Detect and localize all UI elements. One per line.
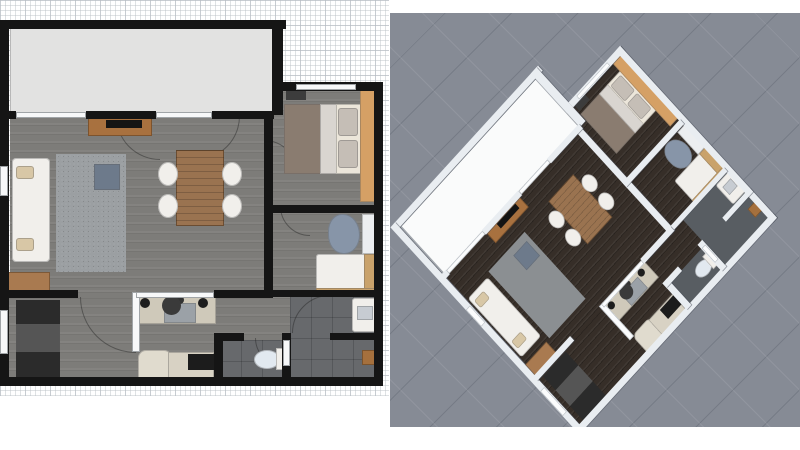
wc-door-leaf bbox=[283, 340, 290, 366]
balcony-right-wall bbox=[272, 20, 283, 115]
bedroom-window bbox=[296, 84, 356, 90]
balcony-floor bbox=[10, 28, 273, 114]
outer-wall-top bbox=[6, 20, 286, 29]
cooktop bbox=[188, 354, 214, 370]
tv bbox=[106, 120, 142, 128]
dining-table bbox=[176, 150, 224, 226]
fridge bbox=[138, 350, 172, 380]
dining-chair-2 bbox=[158, 194, 178, 218]
outer-wall-bottom bbox=[6, 377, 383, 386]
door-gap-kitchen bbox=[78, 290, 136, 298]
kid-bed-mattress bbox=[316, 254, 366, 292]
dining-chair-4 bbox=[222, 194, 242, 218]
hall-top-wall bbox=[214, 290, 272, 298]
bookshelf-top bbox=[16, 300, 60, 324]
stove-pot bbox=[162, 296, 181, 315]
living-sideboard bbox=[8, 272, 50, 292]
washer-drum bbox=[357, 306, 373, 320]
bedrooms-divider-wall bbox=[264, 205, 376, 213]
kid-bath-divider-wall bbox=[272, 290, 376, 297]
master-bed-duvet bbox=[284, 104, 322, 174]
bookshelf-bottom bbox=[16, 352, 60, 378]
dining-chair-1 bbox=[158, 162, 178, 186]
beanbag bbox=[328, 214, 360, 254]
dining-chair-3 bbox=[222, 162, 242, 186]
kitchen-partition bbox=[132, 292, 140, 352]
rug-cushion bbox=[94, 164, 120, 190]
sofa-pillow-top bbox=[16, 166, 34, 179]
floor-plan-app bbox=[0, 0, 800, 450]
balcony-sill-center bbox=[86, 111, 156, 119]
balcony-window-left bbox=[16, 112, 86, 118]
burner-right bbox=[198, 298, 208, 308]
master-pillow-2 bbox=[338, 140, 358, 168]
balcony-window-right bbox=[156, 112, 212, 118]
floor-plan-3d-view[interactable] bbox=[390, 13, 800, 427]
plan-2d-canvas bbox=[0, 0, 390, 450]
bookshelf-middle bbox=[16, 324, 60, 352]
outer-wall-right bbox=[374, 82, 383, 386]
balcony-sill-left bbox=[8, 111, 16, 119]
floor-plan-2d-view[interactable] bbox=[0, 0, 390, 450]
kitchen-window-left-wall bbox=[0, 310, 8, 354]
balcony-sill-right bbox=[212, 111, 274, 119]
kitchen-top-wall bbox=[6, 290, 78, 298]
sofa-pillow-bottom bbox=[16, 238, 34, 251]
wc-wall-horizontal bbox=[214, 333, 244, 341]
kitchen-top-window-wall bbox=[136, 292, 214, 298]
living-window-left-wall bbox=[0, 166, 8, 196]
bathroom-stub-wall bbox=[330, 333, 383, 340]
master-pillow-1 bbox=[338, 108, 358, 136]
burner-left bbox=[140, 298, 150, 308]
